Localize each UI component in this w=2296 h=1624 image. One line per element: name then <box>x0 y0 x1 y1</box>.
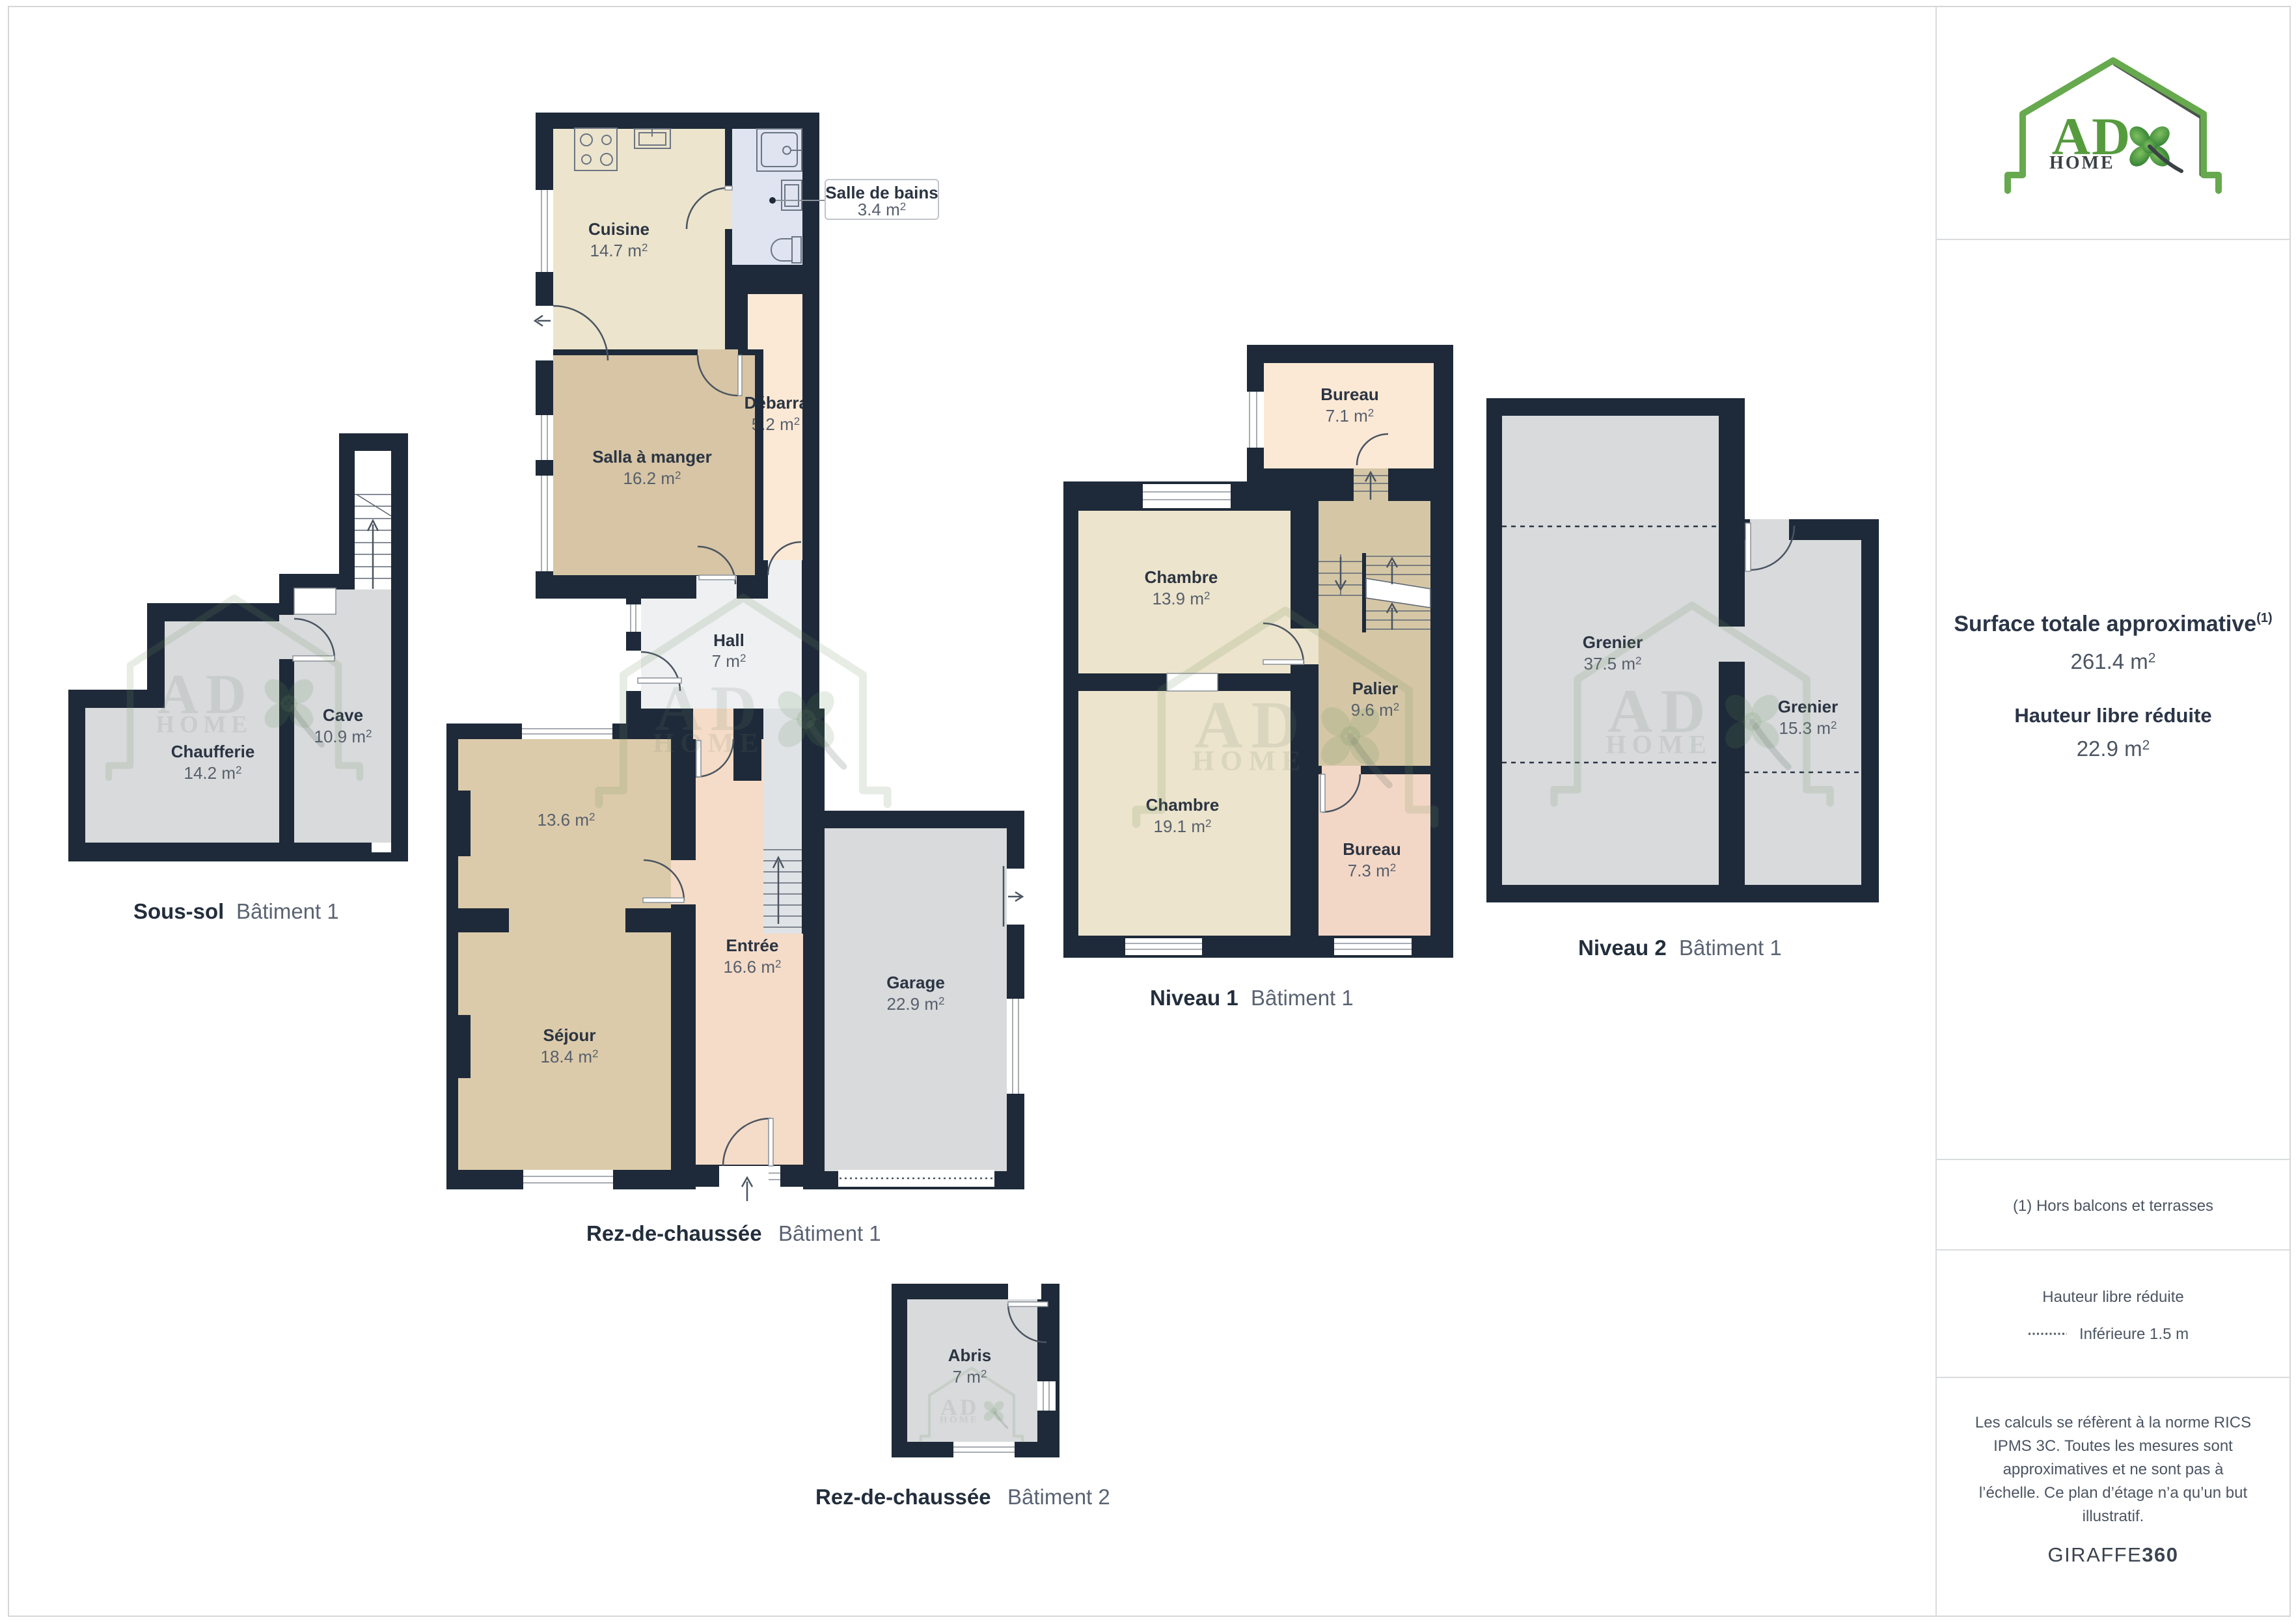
svg-text:18.4 m2: 18.4 m2 <box>541 1047 599 1066</box>
svg-text:Chambre: Chambre <box>1145 567 1218 587</box>
svg-text:approximatives et ne sont pas: approximatives et ne sont pas à <box>2003 1461 2224 1478</box>
svg-text:GIRAFFE360: GIRAFFE360 <box>2047 1543 2178 1566</box>
svg-text:13.6 m2: 13.6 m2 <box>538 810 595 830</box>
svg-text:Rez-de-chaussée: Rez-de-chaussée <box>815 1485 991 1509</box>
svg-text:Bâtiment 1: Bâtiment 1 <box>778 1221 881 1245</box>
svg-text:Garage: Garage <box>886 973 945 992</box>
svg-text:7.1 m2: 7.1 m2 <box>1326 406 1374 426</box>
svg-text:(1) Hors balcons et terrasses: (1) Hors balcons et terrasses <box>2013 1197 2213 1215</box>
svg-text:Hall: Hall <box>713 630 745 650</box>
svg-text:Niveau 1: Niveau 1 <box>1150 986 1238 1010</box>
svg-text:Bâtiment 1: Bâtiment 1 <box>1251 986 1354 1010</box>
svg-text:Entrée: Entrée <box>726 936 779 955</box>
svg-text:IPMS 3C. Toutes les mesures so: IPMS 3C. Toutes les mesures sont <box>1993 1437 2233 1455</box>
svg-text:Hauteur libre réduite: Hauteur libre réduite <box>2042 1288 2183 1306</box>
svg-text:22.9 m2: 22.9 m2 <box>2077 737 2150 761</box>
svg-text:7.3 m2: 7.3 m2 <box>1348 861 1397 880</box>
svg-text:illustratif.: illustratif. <box>2083 1508 2144 1525</box>
svg-text:Séjour: Séjour <box>543 1025 596 1045</box>
svg-text:14.7 m2: 14.7 m2 <box>590 241 648 260</box>
svg-text:Chaufferie: Chaufferie <box>171 742 255 761</box>
svg-text:261.4 m2: 261.4 m2 <box>2071 649 2156 673</box>
svg-text:22.9 m2: 22.9 m2 <box>887 994 945 1014</box>
svg-text:Salla à manger: Salla à manger <box>592 447 712 467</box>
svg-text:Abris: Abris <box>948 1346 991 1365</box>
svg-text:Les calculs se réfèrent à la n: Les calculs se réfèrent à la norme RICS <box>1975 1414 2251 1431</box>
svg-text:13.9 m2: 13.9 m2 <box>1153 589 1210 608</box>
svg-text:Cuisine: Cuisine <box>588 219 649 239</box>
svg-text:Inférieure 1.5 m: Inférieure 1.5 m <box>2079 1325 2189 1343</box>
svg-text:Bureau: Bureau <box>1320 385 1379 404</box>
svg-text:Hauteur libre réduite: Hauteur libre réduite <box>2014 704 2211 727</box>
svg-text:16.6 m2: 16.6 m2 <box>724 957 782 977</box>
svg-text:Surface totale approximative(1: Surface totale approximative(1) <box>1954 611 2272 636</box>
svg-text:19.1 m2: 19.1 m2 <box>1154 817 1212 836</box>
svg-text:14.2 m2: 14.2 m2 <box>184 763 242 783</box>
svg-text:l’échelle. Ce plan d’étage n’a: l’échelle. Ce plan d’étage n’a qu’un but <box>1979 1484 2248 1502</box>
svg-text:3.4 m2: 3.4 m2 <box>858 200 907 219</box>
svg-text:Sous-sol: Sous-sol <box>133 899 224 923</box>
svg-text:Rez-de-chaussée: Rez-de-chaussée <box>586 1221 762 1245</box>
svg-text:Bâtiment 2: Bâtiment 2 <box>1007 1485 1110 1509</box>
svg-text:HOME: HOME <box>2049 153 2115 173</box>
svg-text:Niveau 2: Niveau 2 <box>1578 936 1667 960</box>
svg-text:16.2 m2: 16.2 m2 <box>623 468 681 488</box>
svg-text:Cave: Cave <box>323 705 363 725</box>
svg-text:Bureau: Bureau <box>1343 839 1401 859</box>
svg-text:Bâtiment 1: Bâtiment 1 <box>236 899 339 923</box>
svg-text:Bâtiment 1: Bâtiment 1 <box>1679 936 1782 960</box>
